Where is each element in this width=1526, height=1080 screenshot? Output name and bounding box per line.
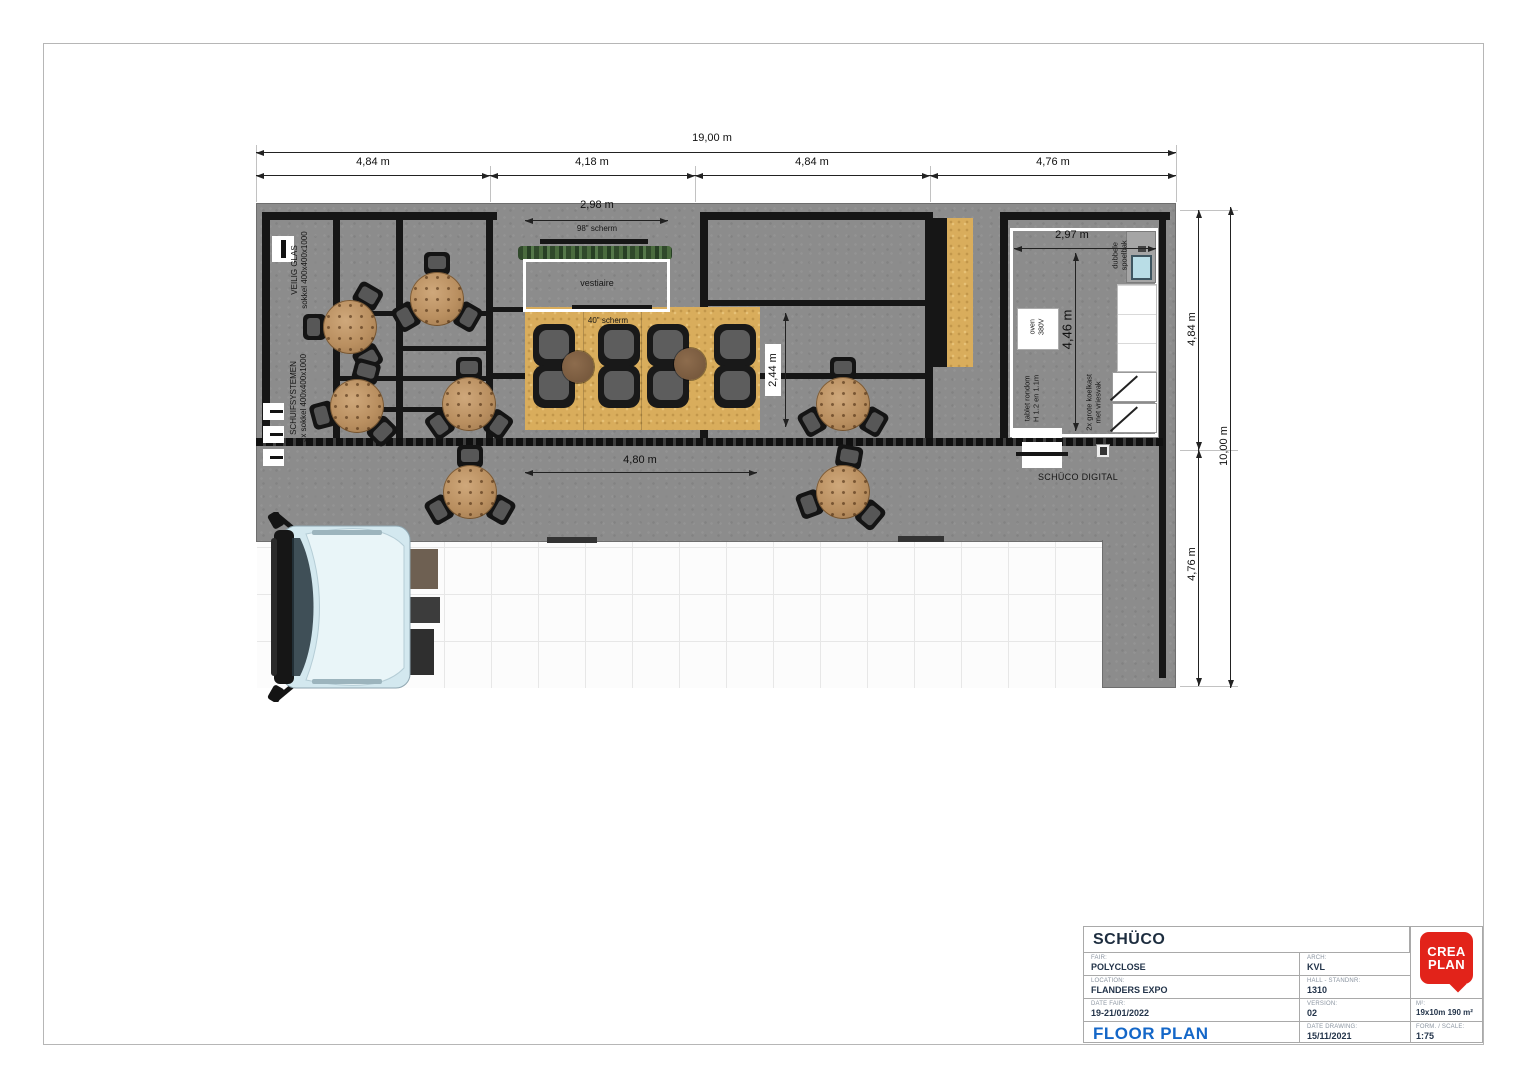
dim-line xyxy=(490,175,695,176)
field-label: VERSION: xyxy=(1307,1001,1410,1007)
wall-segment xyxy=(708,300,925,306)
dim-right-total: 10,00 m xyxy=(1218,411,1230,481)
table-top xyxy=(442,377,496,431)
dim-line xyxy=(695,175,930,176)
fridge xyxy=(1112,372,1157,402)
dim-line xyxy=(1014,248,1156,249)
side-table xyxy=(562,351,594,383)
table-top xyxy=(330,379,384,433)
tv-98-screen xyxy=(540,239,648,244)
slide-rail xyxy=(270,433,283,436)
field-date-drawing: DATE DRAWING: 15/11/2021 xyxy=(1299,1021,1411,1043)
schuco-digital-label: SCHÜCO DIGITAL xyxy=(1023,472,1133,483)
extension-line xyxy=(695,166,696,202)
dim-line xyxy=(525,220,668,221)
extension-line xyxy=(490,166,491,202)
dim-line xyxy=(1230,207,1231,688)
dim-top-seg-3: 4,84 m xyxy=(772,156,852,168)
wall-segment xyxy=(493,307,525,312)
field-label: LOCATION: xyxy=(1091,978,1299,984)
dim-line xyxy=(1198,450,1199,686)
dim-right-seg-top: 4,84 m xyxy=(1186,299,1198,359)
dim-line xyxy=(256,152,1176,153)
round-table xyxy=(795,356,891,452)
table-top xyxy=(816,377,870,431)
chair xyxy=(598,365,640,408)
field-location: LOCATION: FLANDERS EXPO xyxy=(1083,975,1300,999)
field-version: VERSION: 02 xyxy=(1299,998,1411,1022)
tablet-label: tablet rondom H 1.2 en 1.1m xyxy=(1023,362,1042,434)
round-table xyxy=(309,358,405,454)
field-hall: HALL - STANDNR: 1310 xyxy=(1299,975,1411,999)
field-scale: FORM. / SCALE: 1:75 xyxy=(1410,1021,1483,1043)
wall-segment xyxy=(925,212,933,446)
dim-kitchen-depth: 4,46 m xyxy=(1060,295,1075,365)
truck-top-view xyxy=(262,512,437,702)
table-top xyxy=(323,300,377,354)
chair xyxy=(714,365,756,408)
spoelbak-label: dubbele spoelbak xyxy=(1111,228,1130,282)
creaplan-logo: CREA PLAN xyxy=(1420,932,1473,984)
wall-segment xyxy=(547,537,597,543)
wall-segment xyxy=(898,536,944,542)
field-date-fair: DATE FAIR: 19-21/01/2022 xyxy=(1083,998,1300,1022)
fridge-door-swing xyxy=(1110,406,1138,431)
dim-vestiaire-width: 2,98 m xyxy=(557,199,637,211)
field-value: 1310 xyxy=(1307,985,1410,995)
counter-slab xyxy=(1012,428,1062,438)
plant-row xyxy=(518,246,672,260)
wall-segment xyxy=(933,218,947,367)
title-block-company-cell: SCHÜCO xyxy=(1083,926,1410,953)
drawing-title: FLOOR PLAN xyxy=(1093,1024,1299,1044)
kitchen-counter xyxy=(1117,284,1157,372)
digital-totem xyxy=(1096,444,1110,458)
field-value: POLYCLOSE xyxy=(1091,962,1299,972)
field-value: 15/11/2021 xyxy=(1307,1031,1410,1041)
oven-label: oven 380V xyxy=(1029,307,1047,347)
sokkel xyxy=(263,449,284,466)
dim-line xyxy=(1075,253,1076,431)
round-table xyxy=(795,444,891,540)
round-table xyxy=(421,356,517,452)
dim-open-width: 4,80 m xyxy=(600,454,680,466)
dim-lounge-depth: 2,44 m xyxy=(765,344,781,396)
extension-line xyxy=(930,166,931,202)
field-value: KVL xyxy=(1307,962,1410,972)
wall-segment xyxy=(700,212,933,220)
totem-screen xyxy=(1100,447,1107,455)
fridge xyxy=(1112,403,1157,433)
fridge-door-swing xyxy=(1110,375,1138,400)
slide-rail xyxy=(270,410,283,413)
table-top xyxy=(816,465,870,519)
field-value: FLANDERS EXPO xyxy=(1091,985,1299,995)
wood-panel-strip xyxy=(947,218,973,367)
sokkel xyxy=(263,426,284,443)
vestiaire-label: vestiaire xyxy=(552,278,642,289)
field-area: M²: 19x10m 190 m² xyxy=(1410,998,1483,1022)
creaplan-logo-text: CREA PLAN xyxy=(1427,945,1465,971)
field-label: ARCH: xyxy=(1307,955,1410,961)
screen-98-label: 98" scherm xyxy=(552,224,642,234)
dim-top-total: 19,00 m xyxy=(672,132,752,144)
table-top xyxy=(410,272,464,326)
field-label: M²: xyxy=(1416,1001,1482,1007)
field-value: 02 xyxy=(1307,1008,1410,1018)
field-arch: ARCH: KVL xyxy=(1299,952,1411,976)
dim-line xyxy=(256,175,490,176)
dim-line xyxy=(785,313,786,427)
sink-basin xyxy=(1131,255,1152,280)
chair xyxy=(598,324,640,367)
company-name: SCHÜCO xyxy=(1093,931,1409,949)
field-label: FORM. / SCALE: xyxy=(1416,1024,1482,1030)
dim-line xyxy=(525,472,757,473)
field-fair: FAIR: POLYCLOSE xyxy=(1083,952,1300,976)
wall-segment xyxy=(1000,212,1170,220)
field-value: 1:75 xyxy=(1416,1031,1482,1041)
sink-faucet xyxy=(1138,246,1146,252)
floor-plan-sheet: 40" scherm 98" scherm vestiaire oven 380… xyxy=(0,0,1526,1080)
glass-pane xyxy=(281,240,286,258)
dim-top-seg-1: 4,84 m xyxy=(333,156,413,168)
field-label: HALL - STANDNR: xyxy=(1307,978,1410,984)
wall-segment xyxy=(1000,212,1008,446)
dim-right-seg-bottom: 4,76 m xyxy=(1186,534,1198,594)
field-value: 19x10m 190 m² xyxy=(1416,1008,1482,1017)
dim-line xyxy=(1198,210,1199,450)
field-label: DATE FAIR: xyxy=(1091,1001,1299,1007)
dim-kitchen-width: 2,97 m xyxy=(1032,229,1112,241)
extension-line xyxy=(1176,145,1177,202)
dim-top-seg-2: 4,18 m xyxy=(552,156,632,168)
slide-rail xyxy=(270,456,283,459)
dim-line xyxy=(930,175,1176,176)
side-table xyxy=(674,348,706,380)
field-value: 19-21/01/2022 xyxy=(1091,1008,1299,1018)
koelkast-label: 2x grote koelkast met vriesvak xyxy=(1085,363,1104,441)
field-label: DATE DRAWING: xyxy=(1307,1024,1410,1030)
round-table xyxy=(389,251,485,347)
dim-top-seg-4: 4,76 m xyxy=(1013,156,1093,168)
field-label: FAIR: xyxy=(1091,955,1299,961)
drawing-title-cell: FLOOR PLAN xyxy=(1083,1021,1300,1043)
digital-display-screen xyxy=(1016,452,1068,456)
sokkel xyxy=(263,403,284,420)
table-top xyxy=(443,465,497,519)
chair xyxy=(714,324,756,367)
